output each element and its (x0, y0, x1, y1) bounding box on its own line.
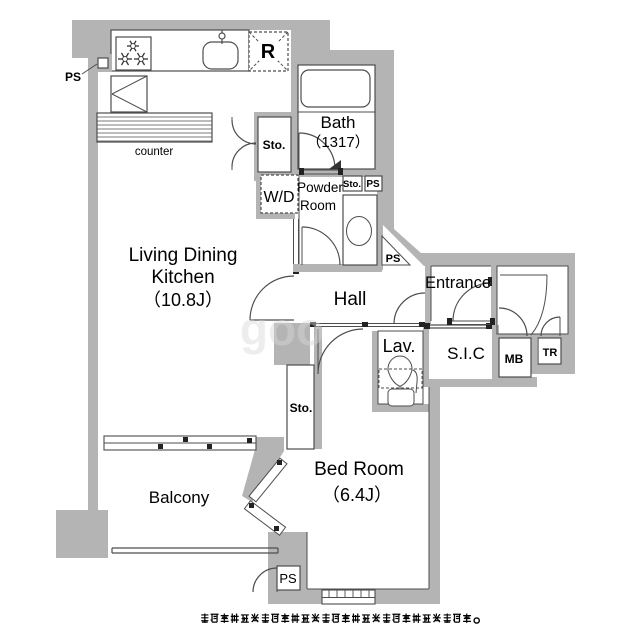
svg-text:Sto.: Sto. (290, 401, 313, 415)
svg-text:Powder: Powder (297, 180, 343, 195)
svg-text:W/D: W/D (263, 189, 294, 206)
svg-text:（6.4J）: （6.4J） (322, 485, 392, 505)
svg-text:Lav.: Lav. (383, 336, 416, 356)
svg-text:Hall: Hall (334, 289, 367, 310)
svg-text:（1317）: （1317） (306, 134, 369, 151)
svg-text:MB: MB (505, 352, 524, 366)
svg-text:Living Dining: Living Dining (129, 245, 238, 266)
svg-text:TR: TR (543, 347, 558, 359)
svg-text:Bed Room: Bed Room (314, 459, 404, 480)
svg-text:Sto.: Sto. (343, 179, 361, 190)
svg-text:PS: PS (366, 179, 380, 190)
svg-text:PS: PS (386, 253, 401, 265)
svg-text:Kitchen: Kitchen (151, 267, 214, 288)
svg-text:Sto.: Sto. (263, 138, 286, 152)
svg-text:PS: PS (65, 70, 81, 84)
svg-text:R: R (261, 41, 276, 63)
svg-text:goo: goo (240, 303, 324, 355)
svg-text:PS: PS (279, 571, 297, 586)
svg-text:Balcony: Balcony (149, 488, 210, 507)
svg-text:S.I.C: S.I.C (447, 344, 485, 363)
svg-text:（10.8J）: （10.8J） (143, 290, 223, 310)
svg-text:Room: Room (300, 198, 336, 213)
svg-text:Entrance: Entrance (425, 274, 491, 292)
svg-text:Bath: Bath (321, 113, 356, 132)
svg-text:counter: counter (135, 146, 174, 158)
